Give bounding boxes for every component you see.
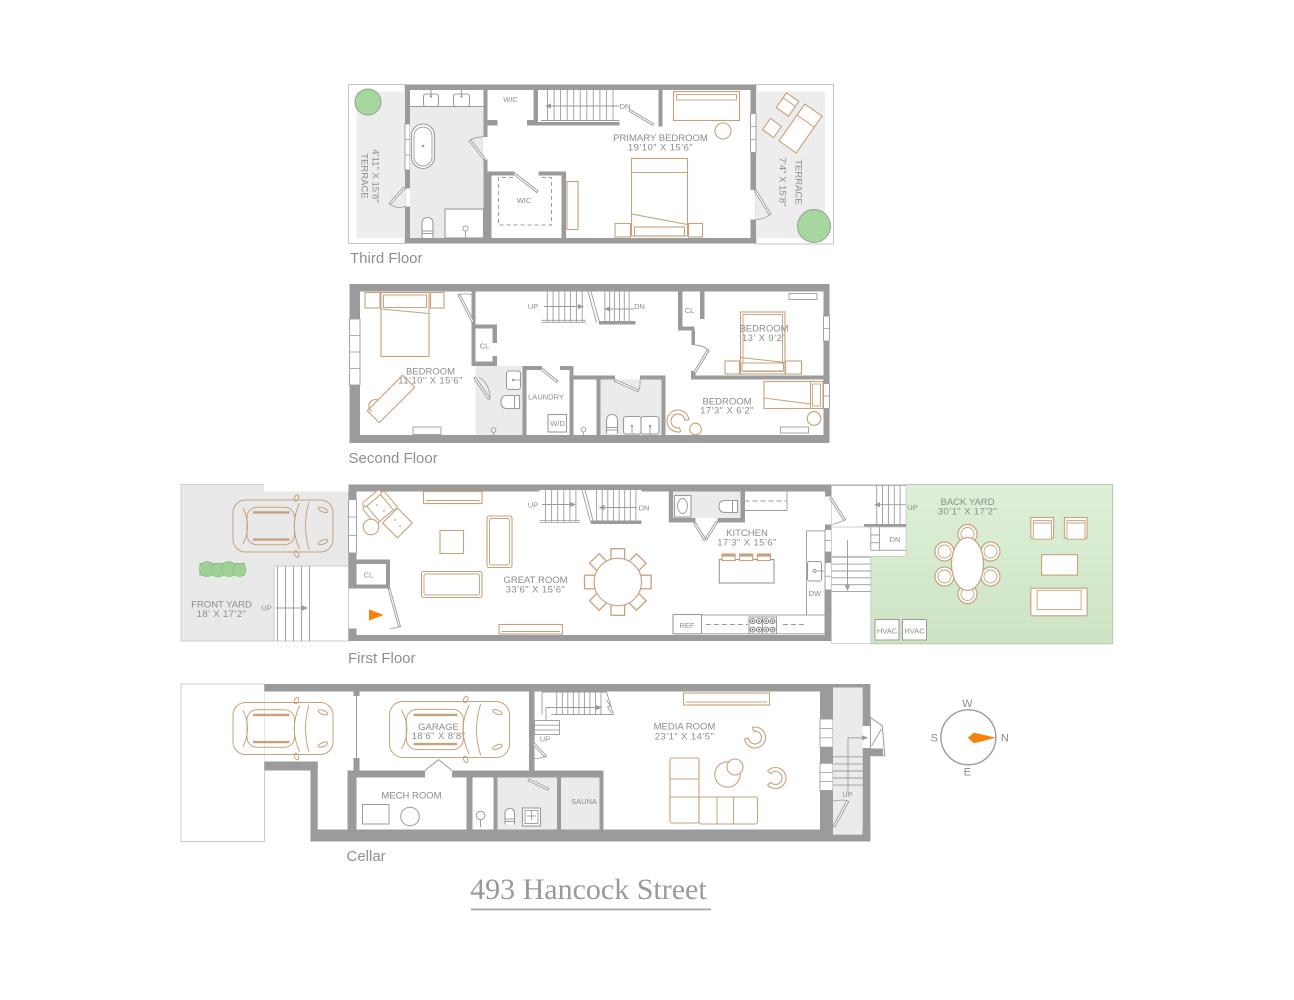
svg-text:CL: CL — [364, 571, 374, 580]
svg-text:DW: DW — [809, 589, 822, 598]
svg-text:UP: UP — [540, 735, 550, 744]
svg-text:UP: UP — [907, 503, 917, 512]
svg-text:CL: CL — [480, 342, 490, 351]
svg-text:DN: DN — [890, 535, 901, 544]
svg-text:UP: UP — [528, 302, 538, 311]
svg-text:30’1" X 17’2": 30’1" X 17’2" — [938, 507, 997, 518]
svg-text:493 Hancock Street: 493 Hancock Street — [470, 873, 707, 906]
svg-text:18’ X 17’2": 18’ X 17’2" — [197, 609, 247, 620]
svg-text:First Floor: First Floor — [348, 650, 416, 667]
svg-text:HVAC: HVAC — [904, 627, 925, 636]
svg-text:19’10" X 15’6": 19’10" X 15’6" — [628, 143, 693, 154]
svg-text:E: E — [964, 767, 971, 779]
svg-text:CL: CL — [685, 306, 695, 315]
svg-text:N: N — [1001, 732, 1009, 744]
svg-text:17’3" X 15’6": 17’3" X 15’6" — [717, 538, 776, 549]
svg-text:17’3" X 6’2": 17’3" X 6’2" — [700, 406, 754, 417]
svg-text:HVAC: HVAC — [877, 627, 898, 636]
svg-text:Cellar: Cellar — [347, 848, 386, 865]
svg-text:W/D: W/D — [550, 419, 565, 428]
svg-text:Second Floor: Second Floor — [349, 450, 438, 467]
svg-text:UP: UP — [261, 604, 271, 613]
svg-text:13’ X 9’2": 13’ X 9’2" — [742, 333, 786, 344]
svg-text:11’10" X 15’6": 11’10" X 15’6" — [398, 376, 462, 387]
svg-text:Third Floor: Third Floor — [350, 250, 423, 267]
svg-text:S: S — [931, 732, 938, 744]
svg-text:DN: DN — [639, 504, 650, 513]
svg-text:23’1" X 14’5": 23’1" X 14’5" — [655, 732, 714, 743]
svg-text:4’11" X 15’8": 4’11" X 15’8" — [370, 149, 381, 203]
svg-text:W: W — [962, 698, 973, 710]
svg-text:7’4" X 15’8": 7’4" X 15’8" — [777, 158, 788, 207]
svg-text:LAUNDRY: LAUNDRY — [528, 393, 564, 402]
svg-text:MECH ROOM: MECH ROOM — [381, 791, 441, 802]
svg-text:UP: UP — [528, 501, 538, 510]
svg-text:33’6" X 15’6": 33’6" X 15’6" — [506, 585, 565, 596]
svg-text:TERRACE: TERRACE — [793, 159, 804, 204]
svg-text:DN: DN — [620, 102, 631, 111]
svg-text:REF: REF — [680, 621, 695, 630]
svg-text:WIC: WIC — [503, 95, 518, 104]
svg-text:TERRACE: TERRACE — [359, 153, 370, 198]
svg-text:WIC: WIC — [517, 196, 532, 205]
svg-text:18’6" X 8’8": 18’6" X 8’8" — [412, 731, 466, 742]
svg-text:UP: UP — [842, 790, 852, 799]
svg-text:DN: DN — [634, 302, 645, 311]
svg-text:SAUNA: SAUNA — [571, 797, 597, 806]
